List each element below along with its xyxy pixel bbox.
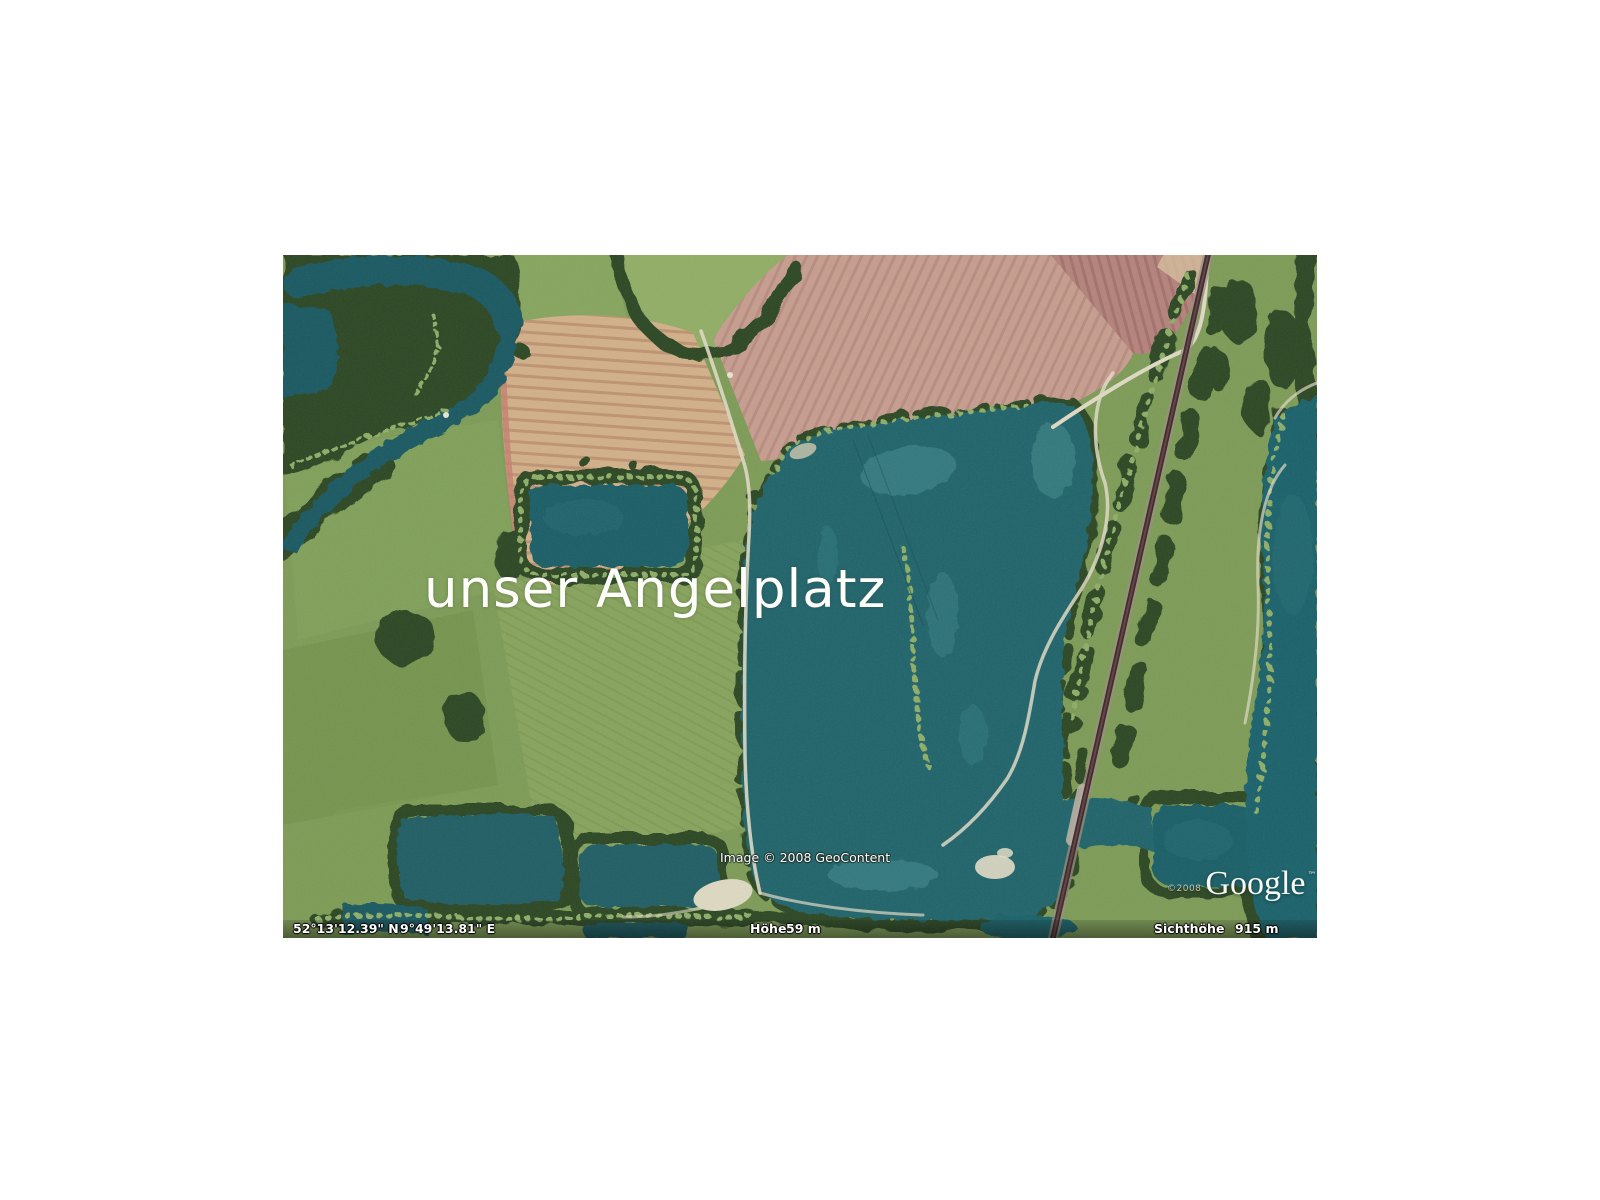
longitude-readout: 9°49'13.81" E <box>400 920 495 938</box>
google-logo-year: ©2008 <box>1167 884 1201 894</box>
altitude-label: Höhe <box>750 920 786 938</box>
page-background: { "page": { "background": "#ffffff" }, "… <box>0 0 1600 1200</box>
status-bar: 52°13'12.39" N 9°49'13.81" E Höhe 59 m S… <box>283 920 1317 938</box>
imagery-copyright-label: Image © 2008 GeoContent <box>720 850 890 865</box>
google-logo: ©2008 Google ™ <box>1167 867 1317 901</box>
latitude-readout: 52°13'12.39" N <box>293 920 399 938</box>
map-title-annotation: unser Angelplatz <box>424 559 886 620</box>
view-altitude-value: 915 m <box>1235 920 1278 938</box>
satellite-map-viewport[interactable]: unser Angelplatz Image © 2008 GeoContent… <box>283 255 1317 938</box>
view-altitude-label: Sichthöhe <box>1154 920 1224 938</box>
trademark-symbol: ™ <box>1308 871 1317 881</box>
altitude-value: 59 m <box>786 920 821 938</box>
google-wordmark: Google <box>1205 867 1305 901</box>
